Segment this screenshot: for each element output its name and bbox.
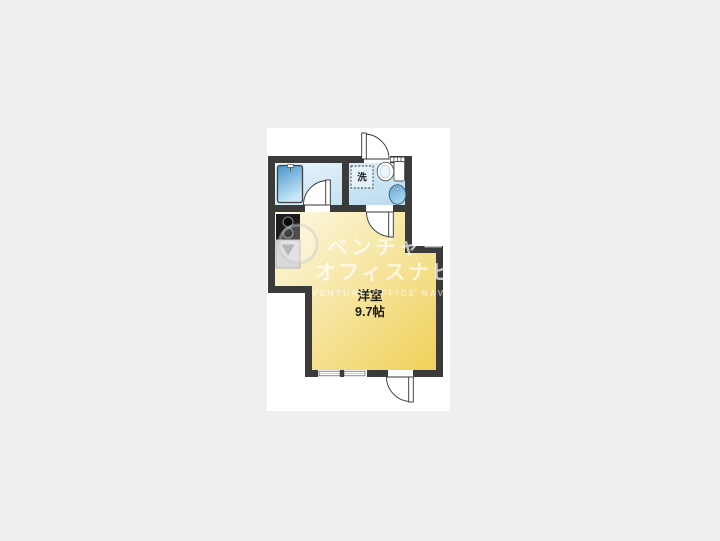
balcony-opening (388, 370, 413, 377)
bathtub-icon (278, 165, 303, 203)
balcony-door-icon (387, 377, 414, 402)
watermark-logo-icon (279, 225, 317, 263)
entrance-door-icon (362, 133, 389, 159)
washroom-opening (366, 205, 393, 212)
bathtub-faucet-icon (288, 165, 294, 168)
laundry-space: 洗 (351, 166, 373, 188)
room-area-label: 9.7帖 (355, 304, 385, 319)
laundry-label: 洗 (357, 172, 367, 184)
washbasin-icon (389, 185, 406, 205)
watermark-line1: ベンチャー (327, 236, 447, 259)
wall-notch-vertical (305, 286, 312, 377)
bathroom-opening (305, 205, 330, 212)
floorplan-canvas: 洗 洋室 9.7帖 (267, 128, 450, 411)
wall-left (268, 156, 275, 293)
toilet-icon (377, 162, 404, 182)
window-icon (319, 370, 365, 377)
watermark-line3: VENTURE OFFICE NAVI (312, 289, 450, 298)
wall-bath-divider (342, 156, 349, 212)
floorplan: 洗 洋室 9.7帖 (267, 128, 450, 411)
page: { "page": { "background": "#efefef", "ca… (0, 0, 720, 541)
watermark-line2: オフィスナビ (315, 261, 450, 284)
